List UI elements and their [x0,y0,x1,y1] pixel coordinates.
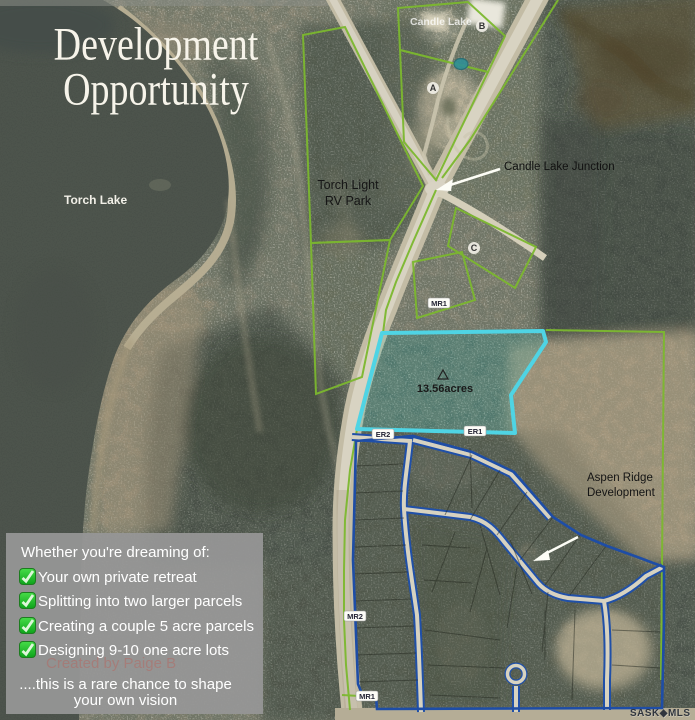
svg-text:MR2: MR2 [347,612,363,621]
svg-text:MR1: MR1 [431,299,447,308]
svg-text:C: C [471,243,478,253]
svg-text:B: B [479,21,486,31]
svg-text:A: A [430,83,437,93]
svg-text:ER1: ER1 [468,427,483,436]
svg-text:ER2: ER2 [376,430,391,439]
svg-text:MR1: MR1 [359,692,375,701]
